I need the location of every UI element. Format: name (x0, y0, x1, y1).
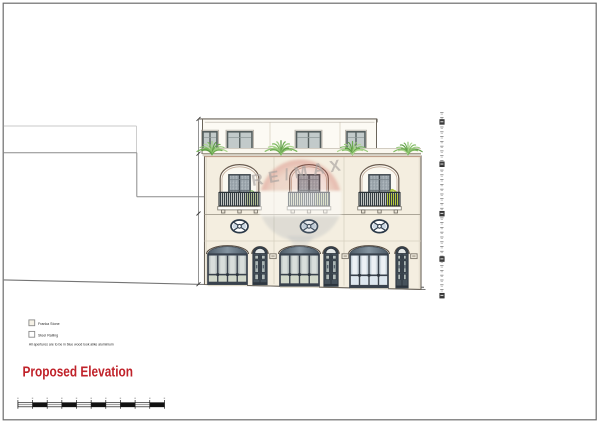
svg-text:Franka Stone: Franka Stone (38, 322, 60, 326)
svg-text:Proposed Elevation: Proposed Elevation (23, 364, 134, 380)
svg-text:Steel Railing: Steel Railing (38, 333, 58, 337)
svg-text:All apertures are to be in blu: All apertures are to be in blue wood loo… (29, 343, 114, 347)
